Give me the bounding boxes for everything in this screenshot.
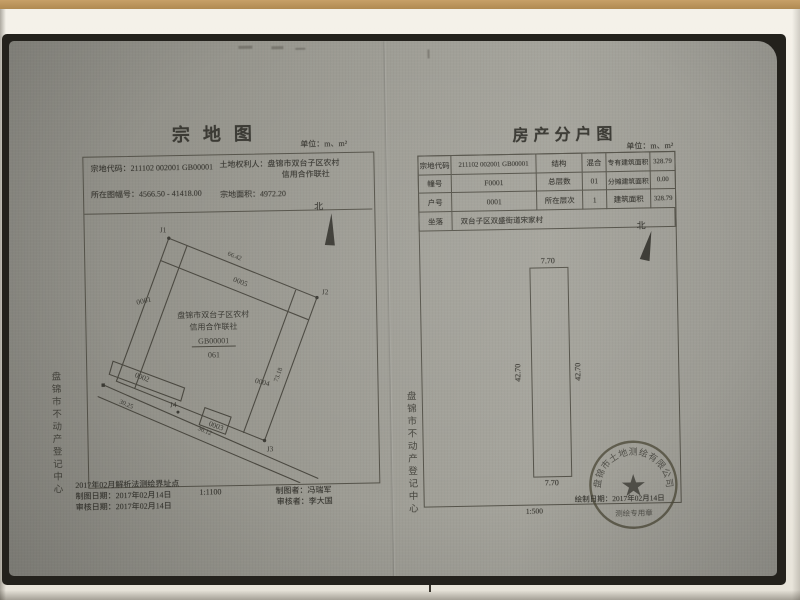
parcel-code-row: 宗地代码：211102 002001 GB00001 <box>90 162 213 174</box>
dim-top: 7.70 <box>529 256 566 267</box>
table-cell: 328.79 <box>650 152 674 171</box>
road-corner-point <box>101 383 104 386</box>
unit-outline <box>529 267 572 478</box>
measure-top: 66.42 <box>226 251 242 263</box>
building-0002 <box>109 360 185 402</box>
boundary-point-j2 <box>315 296 318 299</box>
floor-plan-frame <box>417 151 681 508</box>
map-sheet-label: 所在图幅号： <box>91 190 139 200</box>
road-line-1 <box>104 382 318 483</box>
parcel-sketch: J1 J2 J3 J4 0005 66.42 0001 0002 0003 00… <box>83 208 378 486</box>
parcel-code-fraction-top: GB00001 <box>198 336 229 346</box>
dim-left: 42.70 <box>513 364 523 382</box>
table-cell: 328.79 <box>651 189 675 208</box>
rights-holder-line1: 盘锦市双台子区农村 <box>267 158 339 168</box>
label-parcel-0002: 0002 <box>134 370 151 384</box>
parcel-area-label: 宗地面积： <box>220 190 260 200</box>
table-cell: 户号 <box>419 193 452 213</box>
label-j3: J3 <box>267 444 274 453</box>
strip-0004-line <box>241 290 299 433</box>
left-margin-registry-text: 盘锦市不动产登记中心 <box>47 371 63 496</box>
measure-road-2: 36.12 <box>197 425 213 437</box>
table-cell: 幢号 <box>419 175 452 194</box>
rights-holder-row: 土地权利人：盘锦市双台子区农村 <box>219 158 339 170</box>
strip-0001-line <box>132 246 190 389</box>
label-parcel-0005: 0005 <box>232 275 250 289</box>
right-margin-registry-text: 盘锦市不动产登记中心 <box>403 391 419 521</box>
label-parcel-0001: 0001 <box>135 295 152 307</box>
table-cell: 建筑面积 <box>607 189 651 209</box>
scanned-page-dark-border: 宗地图 单位：m、m² 宗地代码：211102 002001 GB00001 所… <box>2 34 786 585</box>
parcel-code-value: 211102 002001 GB00001 <box>130 162 213 173</box>
review-date: 审核日期：2017年02月14日 <box>76 501 172 513</box>
table-cell: 0001 <box>452 191 537 212</box>
floor-plan-title: 房产分户图 <box>495 120 630 146</box>
label-j4: J4 <box>170 400 177 409</box>
north-arrow-icon <box>325 213 337 245</box>
strip-0005-line <box>160 258 308 323</box>
table-cell: 分摊建筑面积 <box>607 171 651 190</box>
reviewer: 审核者：李大国 <box>277 496 333 507</box>
seal-ring <box>590 441 678 529</box>
owner-name-line1: 盘锦市双台子区农村 <box>177 309 249 320</box>
table-cell: 所在层次 <box>537 191 583 211</box>
boundary-point-j3 <box>263 439 266 442</box>
table-cell: 宗地代码 <box>418 156 451 176</box>
parcel-map-frame <box>82 151 380 488</box>
floor-plan-info-table: 宗地代码 211102 002001 GB00001 结构 混合 专有建筑面积 … <box>417 151 676 232</box>
map-sheet-row: 所在图幅号：4566.50 - 41418.00 <box>91 189 202 201</box>
road-line-2 <box>98 393 301 487</box>
parcel-map-header-divider <box>84 208 372 214</box>
boundary-point-j4 <box>176 411 179 414</box>
table-cell: 结构 <box>536 154 582 174</box>
north-arrow-icon <box>640 230 656 261</box>
draw-date: 制图日期：2017年02月14日 <box>75 490 171 502</box>
fold-crease <box>382 41 396 576</box>
scanned-page-content: 宗地图 单位：m、m² 宗地代码：211102 002001 GB00001 所… <box>9 41 777 576</box>
dim-right: 42.70 <box>573 363 583 381</box>
north-label: 北 <box>314 199 323 212</box>
label-parcel-0004: 0004 <box>254 376 271 388</box>
north-label: 北 <box>637 218 646 231</box>
table-cell: F0001 <box>452 173 537 193</box>
owner-name-line2: 信用合作联社 <box>189 321 237 332</box>
survey-method-note: 2017年02月解析法测绘界址点 <box>75 479 179 491</box>
building-0003 <box>199 407 231 435</box>
label-j2: J2 <box>322 287 329 296</box>
bleed-mark <box>238 46 252 49</box>
scan-tilt-layer: 宗地图 单位：m、m² 宗地代码：211102 002001 GB00001 所… <box>9 41 777 576</box>
label-j1: J1 <box>160 225 167 234</box>
address-cell: 双台子区双盛街道宋家村 <box>452 208 675 230</box>
paper-edge-mark <box>429 585 431 592</box>
parcel-area-row: 宗地面积：4972.20 <box>220 189 286 200</box>
survey-date: 绘制日期：2017年02月14日 <box>575 493 665 504</box>
bleed-mark <box>295 48 305 50</box>
map-sheet-value: 4566.50 - 41418.00 <box>139 189 202 199</box>
table-cell: 0.00 <box>651 171 675 189</box>
rights-holder-label: 土地权利人： <box>219 159 267 169</box>
measure-right: 73.18 <box>273 367 285 383</box>
table-cell: 专有建筑面积 <box>606 152 650 172</box>
table-cell: 211102 002001 GB00001 <box>451 154 536 175</box>
floor-plan-unit-label: 单位：m、m² <box>611 141 673 152</box>
floor-plan-scale: 1:500 <box>526 506 543 515</box>
parcel-map-scale: 1:1100 <box>199 487 221 497</box>
parcel-area-value: 4972.20 <box>260 189 286 198</box>
parcel-code-label: 宗地代码： <box>90 164 130 174</box>
bleed-mark <box>427 49 429 58</box>
parcel-map-unit-label: 单位：m、m² <box>285 139 347 150</box>
label-parcel-0003: 0003 <box>208 419 225 433</box>
seal-ring-text: 盘锦市土地测绘有限公司 <box>590 445 674 490</box>
table-cell: 1 <box>583 190 607 209</box>
parcel-boundary <box>114 236 320 444</box>
table-cell: 01 <box>583 172 607 190</box>
seal-bottom-text: 测绘专用章 <box>615 507 653 518</box>
paper-sheet: 宗地图 单位：m、m² 宗地代码：211102 002001 GB00001 所… <box>0 9 800 600</box>
table-cell: 坐落 <box>419 212 452 231</box>
bleed-mark <box>271 46 283 49</box>
boundary-point-j1 <box>167 236 170 239</box>
rights-holder-line2: 信用合作联社 <box>282 169 330 180</box>
parcel-map-title: 宗地图 <box>142 119 282 148</box>
measure-road-1: 30.25 <box>118 399 134 411</box>
drafter: 制图者：冯瑞军 <box>275 485 331 496</box>
seal-star-icon: ★ <box>620 470 648 503</box>
table-cell: 总层数 <box>537 173 583 192</box>
parcel-number-fraction-bottom: 061 <box>208 350 220 359</box>
table-cell: 混合 <box>582 153 606 172</box>
dim-bottom: 7.70 <box>533 478 570 489</box>
fraction-line <box>192 346 236 347</box>
photo-of-document: 宗地图 单位：m、m² 宗地代码：211102 002001 GB00001 所… <box>0 0 800 600</box>
surveyor-seal: 盘锦市土地测绘有限公司 ★ 测绘专用章 <box>587 438 681 532</box>
